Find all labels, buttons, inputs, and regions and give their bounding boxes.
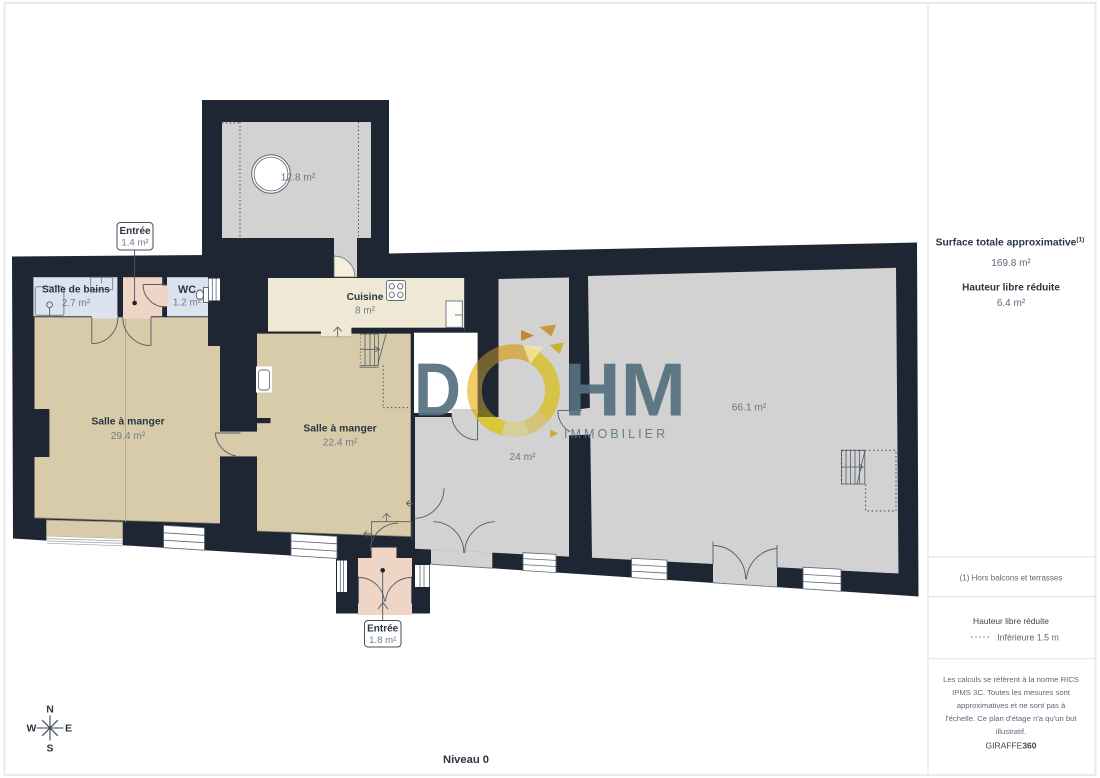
svg-text:GIRAFFE360: GIRAFFE360 bbox=[985, 741, 1036, 751]
svg-text:E: E bbox=[65, 723, 72, 735]
svg-text:29.4 m²: 29.4 m² bbox=[111, 431, 146, 442]
svg-text:(1) Hors balcons et terrasses: (1) Hors balcons et terrasses bbox=[960, 574, 1063, 583]
svg-text:Cuisine: Cuisine bbox=[347, 292, 384, 303]
svg-text:1.8 m²: 1.8 m² bbox=[369, 635, 397, 646]
svg-text:approximatives et ne sont pas: approximatives et ne sont pas à bbox=[957, 701, 1066, 710]
svg-text:66.1 m²: 66.1 m² bbox=[732, 403, 767, 414]
svg-text:Salle à manger: Salle à manger bbox=[303, 424, 376, 435]
svg-text:Surface totale approximative(1: Surface totale approximative(1) bbox=[936, 237, 1085, 249]
svg-text:8 m²: 8 m² bbox=[355, 306, 376, 317]
svg-text:Hauteur libre réduite: Hauteur libre réduite bbox=[973, 616, 1049, 626]
svg-text:Salle à manger: Salle à manger bbox=[91, 417, 164, 428]
svg-text:WC: WC bbox=[178, 284, 196, 296]
svg-text:12.8 m²: 12.8 m² bbox=[281, 173, 316, 184]
svg-text:2.7 m²: 2.7 m² bbox=[62, 298, 91, 309]
svg-text:D: D bbox=[414, 348, 461, 432]
svg-text:N: N bbox=[46, 704, 54, 716]
svg-text:IMMOBILIER: IMMOBILIER bbox=[564, 427, 668, 441]
svg-text:Niveau 0: Niveau 0 bbox=[443, 754, 489, 766]
svg-text:S: S bbox=[46, 743, 53, 755]
svg-text:Les calculs se réfèrent à la n: Les calculs se réfèrent à la norme RICS bbox=[943, 675, 1079, 684]
svg-text:Entrée: Entrée bbox=[119, 226, 151, 237]
svg-text:6.4 m²: 6.4 m² bbox=[997, 298, 1026, 309]
svg-text:Salle de bains: Salle de bains bbox=[42, 285, 110, 296]
svg-text:1.2 m²: 1.2 m² bbox=[173, 298, 202, 309]
svg-text:Inférieure 1.5 m: Inférieure 1.5 m bbox=[997, 632, 1059, 642]
svg-text:169.8 m²: 169.8 m² bbox=[991, 258, 1031, 269]
svg-text:HM: HM bbox=[564, 348, 686, 432]
svg-text:l'échelle. Ce plan d'étage n'a: l'échelle. Ce plan d'étage n'a qu'un but bbox=[945, 714, 1077, 723]
svg-text:illustratif.: illustratif. bbox=[996, 727, 1026, 736]
svg-text:24 m²: 24 m² bbox=[509, 452, 536, 463]
svg-text:22.4 m²: 22.4 m² bbox=[323, 438, 358, 449]
svg-text:W: W bbox=[27, 723, 37, 735]
svg-text:IPMS 3C. Toutes les mesures so: IPMS 3C. Toutes les mesures sont bbox=[952, 688, 1071, 697]
svg-text:1.4 m²: 1.4 m² bbox=[121, 238, 149, 249]
svg-text:Hauteur libre réduite: Hauteur libre réduite bbox=[962, 283, 1060, 294]
svg-text:Entrée: Entrée bbox=[367, 624, 399, 635]
